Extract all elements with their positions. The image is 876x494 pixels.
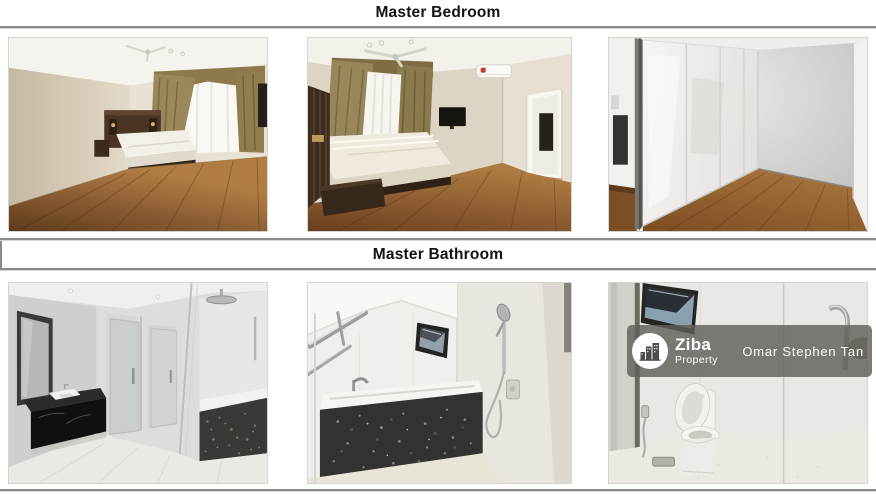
photo-master-bathroom-2 — [307, 282, 572, 484]
watermark-agent-name: Omar Stephen Tan — [742, 344, 864, 359]
bedroom-2-illustration — [308, 38, 571, 231]
divider-line-top — [0, 26, 876, 29]
watermark-brand-name: Ziba — [675, 336, 718, 353]
divider-line-mid-upper — [0, 238, 876, 241]
photo-master-bathroom-1 — [8, 282, 268, 484]
bathroom-2-illustration — [308, 283, 571, 483]
ziba-logo-circle — [632, 333, 668, 369]
divider-line-bottom — [0, 489, 876, 492]
watermark-brand-sub: Property — [675, 355, 718, 366]
watermark-brand: Ziba Property — [675, 336, 718, 366]
wardrobe-illustration — [609, 38, 867, 231]
section-title-master-bedroom: Master Bedroom — [0, 3, 876, 23]
section-title-master-bathroom: Master Bathroom — [0, 245, 876, 265]
bathroom-1-illustration — [9, 283, 267, 483]
photo-master-bedroom-1 — [8, 37, 268, 232]
watermark-band: Ziba Property Omar Stephen Tan — [627, 325, 872, 377]
bedroom-1-illustration — [9, 38, 267, 231]
property-listing-photo-sheet: Master Bedroom — [0, 0, 876, 494]
buildings-skyline-icon — [638, 339, 662, 363]
bathroom-3-illustration — [609, 283, 867, 483]
photo-master-bedroom-2 — [307, 37, 572, 232]
photo-master-bedroom-wardrobe — [608, 37, 868, 232]
photo-master-bathroom-3 — [608, 282, 868, 484]
divider-line-mid-lower — [0, 268, 876, 271]
